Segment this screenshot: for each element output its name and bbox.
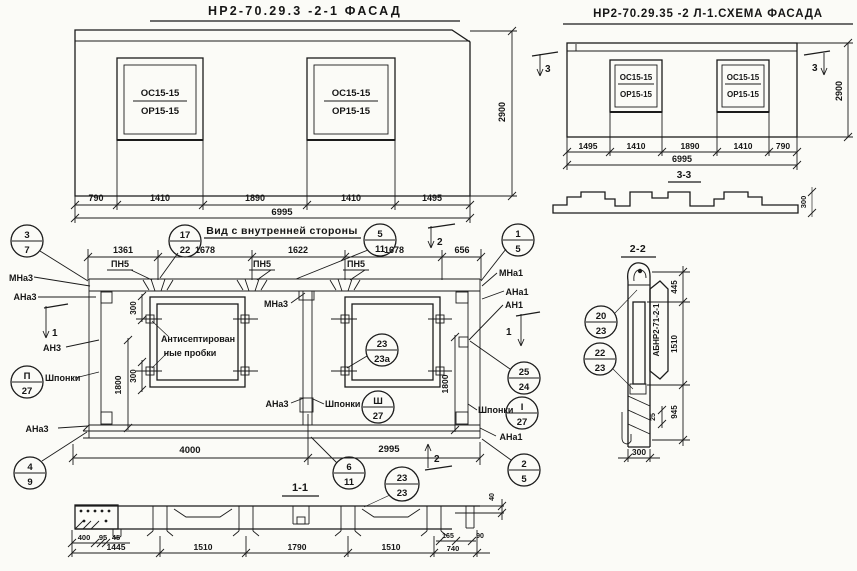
window-mark-bottom: ОР15-15 [727, 90, 760, 99]
label-an3: АН3 [43, 343, 61, 353]
dim: 2995 [378, 444, 400, 455]
inner-view-drawing: Вид с внутренней стороны 1361 1678 1622 … [9, 224, 540, 489]
callout-I-27: I 27 [506, 397, 538, 429]
callout-20-23: 20 23 [585, 306, 617, 338]
callout-top: 5 [377, 229, 383, 240]
dim: 90 [476, 533, 484, 540]
note-line2: ные пробки [164, 348, 217, 358]
callout-bottom: 24 [519, 382, 530, 393]
callout-top: I [521, 402, 524, 413]
callout-5-11: 5 11 [364, 224, 396, 256]
dim-extensions [72, 530, 490, 557]
callout-bottom: 9 [27, 477, 32, 488]
pn5-label: ПН5 [253, 259, 271, 269]
panel-outline [75, 30, 470, 196]
dim-total: 6995 [271, 207, 293, 218]
callout-17-22: 17 22 [169, 225, 201, 257]
window-mark-top: ОС15-15 [332, 88, 371, 99]
cut-label: 3 [812, 63, 818, 74]
section-cut-mark-3-right: 3 [804, 51, 830, 75]
callout-25-24: 25 24 [508, 362, 540, 394]
label-mna1: МНа1 [499, 268, 523, 278]
inner-view-title: Вид с внутренней стороны [206, 225, 357, 237]
label-ana1-bottom: АНа1 [499, 432, 522, 442]
label-an1: АН1 [505, 300, 523, 310]
callout-Sh-27: Ш 27 [362, 391, 394, 423]
dim: 1361 [113, 245, 133, 255]
section-cut-mark-3-left: 3 [532, 52, 558, 76]
window-2: ОС15-15 ОР15-15 [717, 60, 769, 112]
dim: 1410 [341, 193, 361, 203]
dim: 790 [776, 141, 790, 151]
dim: 1495 [579, 141, 598, 151]
cut-mark-1-left: 1 [43, 304, 68, 339]
callout-bottom: 23а [374, 354, 391, 365]
section-2-2-drawing: 2-2 АБНР2-71-2-1 20 23 22 23 [584, 243, 690, 462]
window-mark-bottom: ОР15-15 [620, 90, 653, 99]
callout-bottom: 5 [515, 244, 521, 255]
dim-lines [618, 266, 690, 462]
dim: 1410 [627, 141, 646, 151]
dim: 1495 [422, 193, 442, 203]
callout-2-5: 2 5 [508, 454, 540, 486]
callout-P-27: П 27 [11, 366, 43, 398]
dim: 1890 [681, 141, 700, 151]
dim: 1410 [150, 193, 170, 203]
dim-ticks [71, 27, 516, 222]
panel-outline [567, 43, 797, 137]
dim-ticks [68, 537, 481, 557]
section-3-3-drawing: 3-3 300 [553, 170, 816, 217]
label-ana1: АНа1 [505, 287, 528, 297]
cut-mark-2-bottom: 2 [425, 444, 452, 470]
dim: 1445 [107, 542, 126, 552]
callout-23-23: 23 23 [385, 467, 419, 501]
label-shponki-right: Шпонки [478, 405, 513, 415]
section-1-1-drawing: 1-1 23 23 40 [68, 467, 506, 557]
dim: 1790 [288, 542, 307, 552]
callout-bottom: 27 [373, 411, 384, 422]
cut-label: 2 [437, 237, 443, 248]
section-title: 3-3 [677, 170, 692, 181]
cut-label: 1 [506, 327, 512, 338]
joint-notches [143, 279, 360, 291]
dim-extensions [75, 31, 517, 223]
callout-22-23: 22 23 [584, 343, 616, 375]
dim: 45 [112, 533, 120, 542]
callout-6-11: 6 11 [333, 457, 365, 489]
opening-right [331, 297, 452, 387]
dim: 4000 [179, 445, 200, 456]
callout-bottom: 11 [375, 244, 386, 255]
dim: 1510 [382, 542, 401, 552]
callout-bottom: 23 [397, 488, 408, 499]
section-title: 1-1 [292, 482, 308, 494]
dim-height: 2900 [497, 102, 507, 122]
dim: 1800 [113, 375, 123, 394]
cut-mark-2-top: 2 [428, 224, 455, 248]
window-mark-bottom: ОР15-15 [141, 106, 180, 117]
label-mna3: МНа3 [9, 273, 33, 283]
profile-outline [553, 192, 798, 213]
dim: 740 [447, 544, 460, 553]
window-1: ОС15-15 ОР15-15 [117, 58, 203, 140]
callout-1-5: 1 5 [502, 224, 534, 256]
callout-bottom: 23 [595, 363, 606, 374]
vertical-dims [128, 294, 455, 432]
callout-bottom: 27 [517, 417, 528, 428]
callout-bottom: 5 [521, 474, 527, 485]
note-line1: Антисептирован [161, 334, 235, 344]
dim: 300 [129, 369, 138, 383]
dim: 40 [489, 493, 496, 501]
callout-top: 23 [397, 473, 408, 484]
callout-top: 4 [27, 462, 33, 473]
opening-left: Антисептирован ные пробки [136, 297, 258, 387]
label-mna3-mid: МНа3 [264, 299, 288, 309]
dim-height: 2900 [834, 81, 844, 101]
callout-3-7: 3 7 [11, 225, 43, 257]
callout-top: 1 [515, 229, 521, 240]
pn5-label: ПН5 [111, 259, 129, 269]
callout-top: 25 [519, 367, 530, 378]
window-mark-bottom: ОР15-15 [332, 106, 371, 117]
callout-top: Ш [373, 396, 383, 407]
profile-ribs [147, 506, 474, 536]
drawing-canvas: НР2-70.29.3 -2-1 ФАСАД ОС15-15 ОР15-15 О… [0, 0, 857, 571]
window-mark-top: ОС15-15 [620, 73, 653, 82]
dim-total: 6995 [672, 154, 692, 164]
callout-bottom: 11 [344, 477, 355, 488]
dim: 1622 [288, 245, 308, 255]
label-ana3: АНа3 [13, 292, 36, 302]
step-dim-40 [455, 499, 504, 520]
dim-ticks [563, 39, 852, 169]
label-shponki-mid: Шпонки [325, 399, 360, 409]
dim: 300 [632, 447, 646, 457]
callout-top: 2 [521, 459, 526, 470]
label-ana3-mid: АНа3 [265, 399, 288, 409]
dim: 445 [670, 280, 679, 294]
dim: 95 [99, 533, 107, 542]
facade-left-title: НР2-70.29.3 -2-1 ФАСАД [208, 4, 402, 18]
pn5-label: ПН5 [347, 259, 365, 269]
facade-right-title: НР2-70.29.35 -2 Л-1.СХЕМА ФАСАДА [593, 8, 823, 20]
callout-top: 20 [596, 311, 607, 322]
label-ana3-bottom: АНа3 [25, 424, 48, 434]
window-2: ОС15-15 ОР15-15 [307, 58, 395, 140]
dim-lines [567, 43, 848, 165]
callout-top: П [24, 371, 31, 382]
dim: 1890 [245, 193, 265, 203]
cut-label: 2 [434, 454, 440, 465]
panel-section-outline [622, 263, 650, 447]
facade-left-drawing: НР2-70.29.3 -2-1 ФАСАД ОС15-15 ОР15-15 О… [71, 4, 517, 223]
dim: 25 [650, 413, 657, 421]
callout-bottom: 22 [180, 245, 191, 256]
dim: 1410 [734, 141, 753, 151]
callout-top: 6 [346, 462, 351, 473]
cut-mark-1-right: 1 [506, 312, 540, 346]
dim-lines [75, 31, 512, 218]
window-mark-top: ОС15-15 [727, 73, 760, 82]
section-title: 2-2 [630, 243, 646, 255]
dim: 400 [78, 533, 91, 542]
callout-top: 22 [595, 348, 606, 359]
dim: 1800 [440, 374, 450, 393]
callout-bottom: 27 [22, 386, 33, 397]
dim: 300 [129, 301, 138, 315]
dim: 300 [799, 196, 808, 209]
callout-bottom: 7 [24, 245, 29, 256]
dim: 1510 [194, 542, 213, 552]
dim: 1510 [670, 335, 679, 353]
stamp-label: АБНР2-71-2-1 [652, 303, 661, 356]
dim: 945 [670, 405, 679, 419]
dim-extensions [88, 249, 481, 280]
bottom-dims [73, 414, 480, 465]
callout-4-9: 4 9 [14, 457, 46, 489]
dim: 790 [88, 193, 103, 203]
facade-right-drawing: НР2-70.29.35 -2 Л-1.СХЕМА ФАСАДА ОС15-15… [532, 8, 853, 170]
callout-23-23a: 23 23а [366, 334, 398, 366]
callout-top: 3 [24, 230, 29, 241]
dim: 656 [454, 245, 469, 255]
callout-top: 17 [180, 230, 191, 241]
callout-bottom: 23 [596, 326, 607, 337]
cut-label: 3 [545, 64, 551, 75]
dim: 165 [442, 533, 454, 540]
drawing-sheet: НР2-70.29.3 -2-1 ФАСАД ОС15-15 ОР15-15 О… [0, 0, 857, 571]
callout-top: 23 [377, 339, 388, 350]
cut-label: 1 [52, 328, 58, 339]
window-mark-top: ОС15-15 [141, 88, 180, 99]
window-1: ОС15-15 ОР15-15 [610, 60, 662, 112]
